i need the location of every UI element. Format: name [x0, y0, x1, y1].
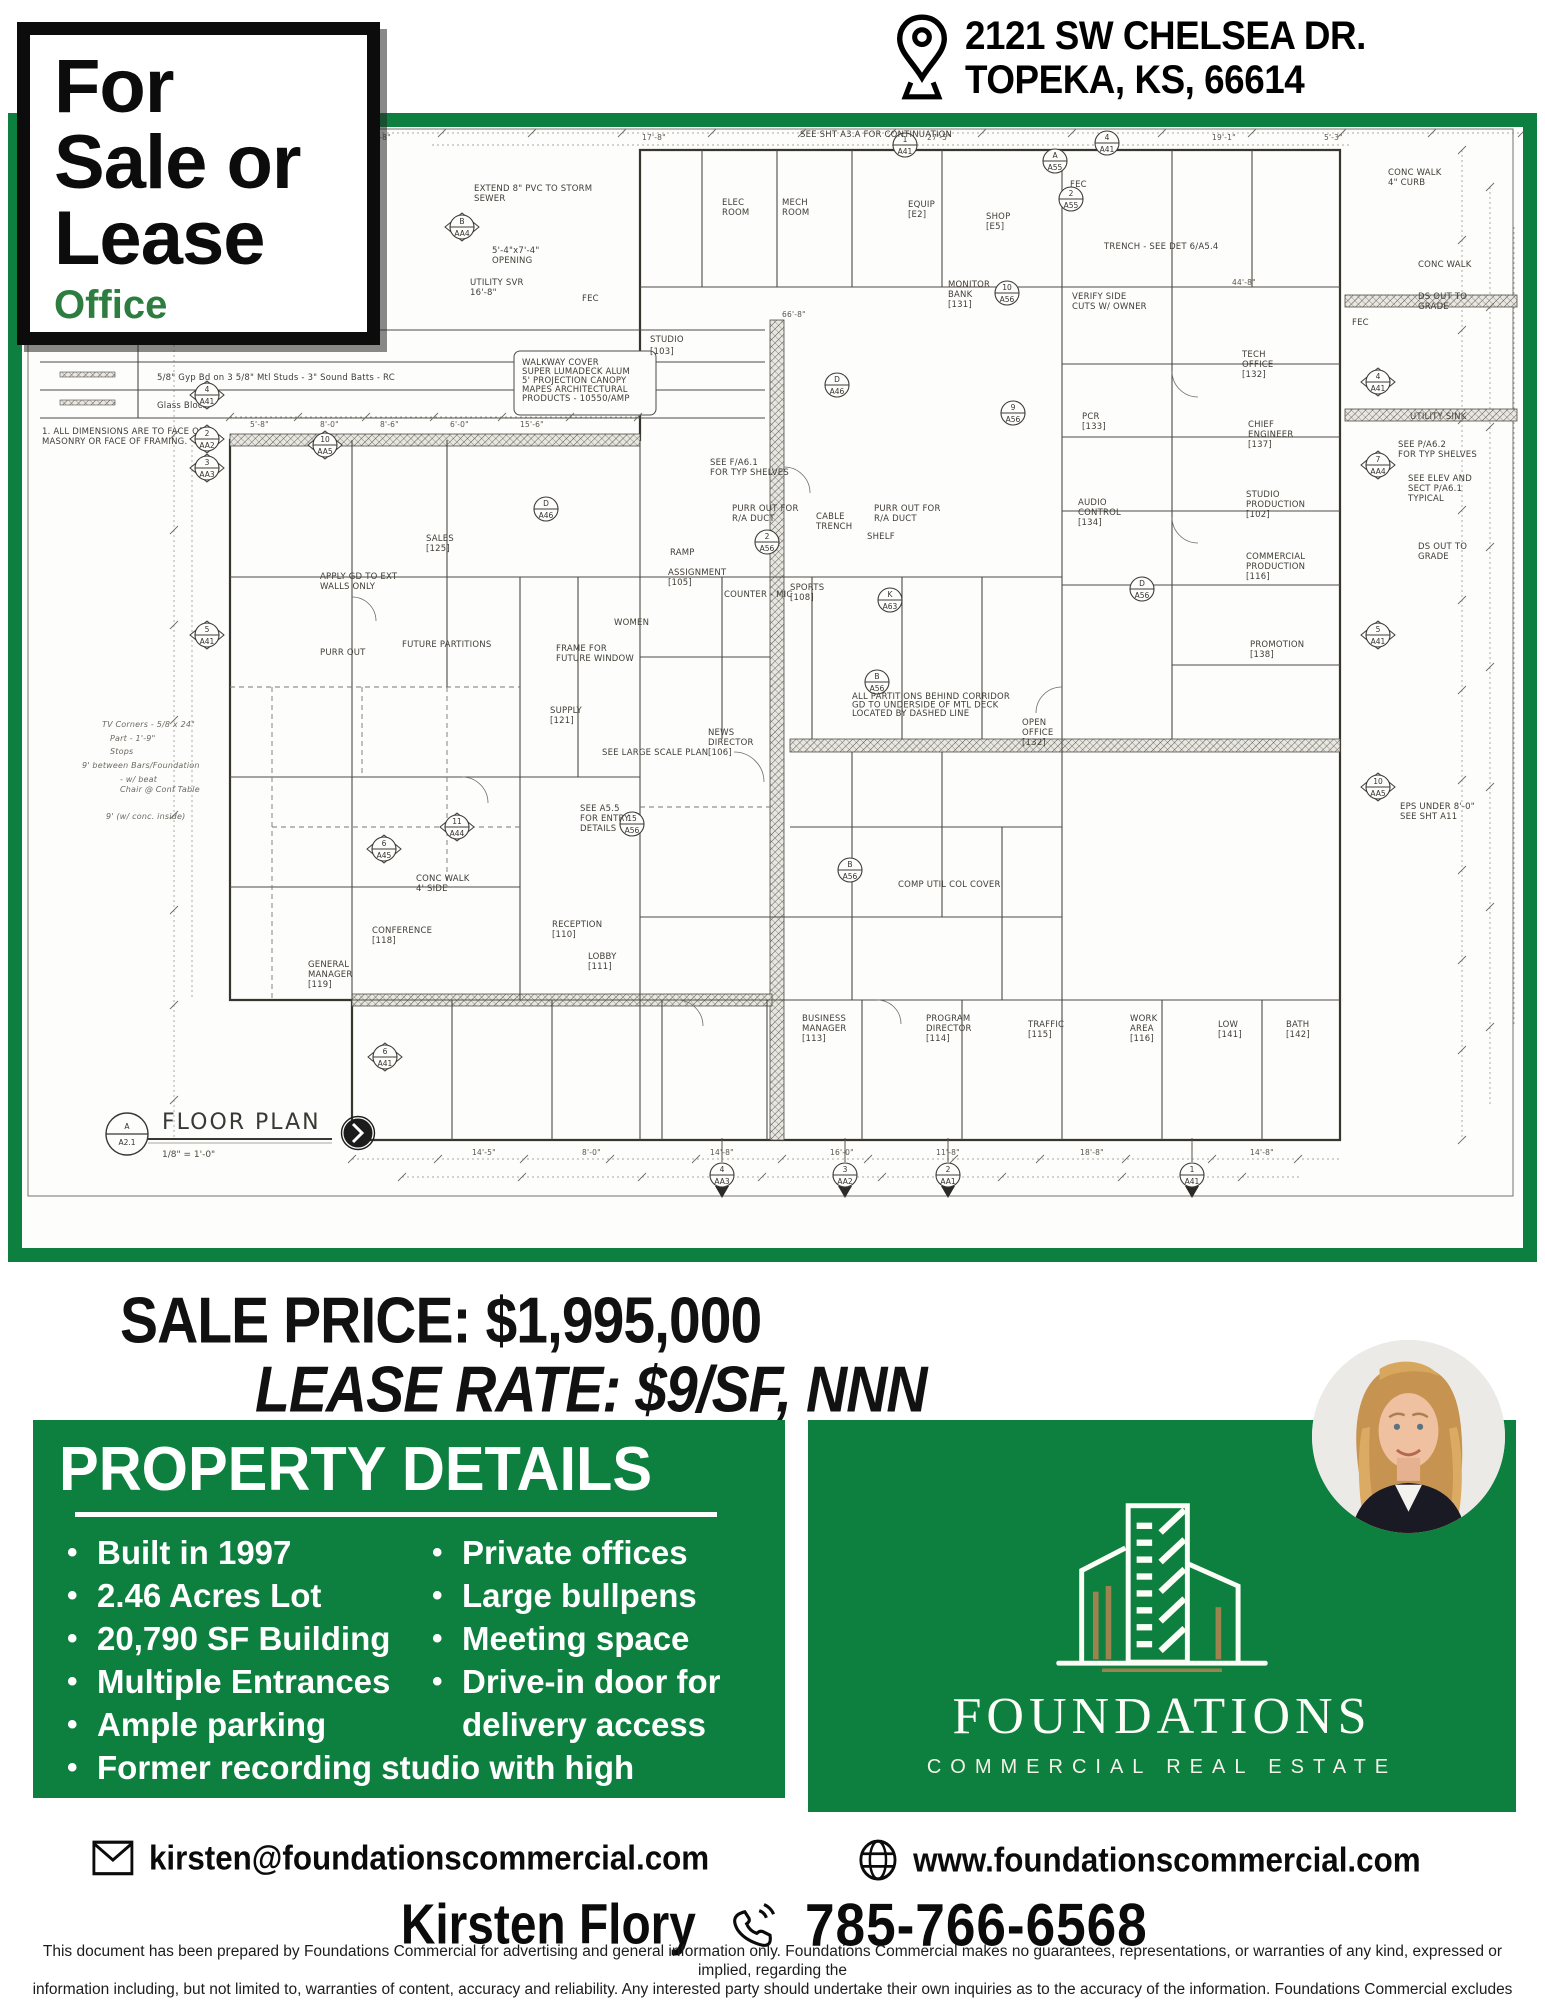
- details-column-1: Built in 19972.46 Acres Lot20,790 SF Bui…: [59, 1531, 424, 1746]
- plan-label: COUNTER - MIC: [724, 590, 793, 600]
- lease-rate: LEASE RATE: $9/SF, NNN: [255, 1352, 927, 1427]
- svg-text:A55: A55: [1048, 163, 1063, 172]
- svg-text:AA2: AA2: [199, 441, 214, 450]
- svg-text:A41: A41: [200, 397, 215, 406]
- location-pin-icon: [893, 14, 951, 100]
- plan-label: 8'-0": [582, 1148, 601, 1157]
- svg-text:10: 10: [1002, 283, 1012, 292]
- svg-text:A46: A46: [830, 387, 845, 396]
- plan-label: 14'-5": [472, 1148, 496, 1157]
- plan-reference-marker: DA46: [534, 497, 558, 521]
- svg-text:A56: A56: [843, 872, 858, 881]
- detail-item: Built in 1997: [59, 1531, 424, 1574]
- svg-text:A44: A44: [450, 829, 465, 838]
- plan-reference-marker: 2A55: [1059, 187, 1083, 211]
- plan-label: 66'-8": [782, 310, 806, 319]
- svg-text:4: 4: [720, 1165, 725, 1174]
- svg-text:A41: A41: [1185, 1177, 1200, 1186]
- svg-text:B: B: [459, 217, 464, 226]
- svg-text:A63: A63: [883, 602, 898, 611]
- plan-label: MECHROOM: [782, 198, 809, 218]
- plan-reference-marker: BA56: [838, 858, 862, 882]
- svg-text:9: 9: [1011, 403, 1016, 412]
- plan-reference-marker: 10A56: [995, 281, 1019, 305]
- svg-text:AA1: AA1: [940, 1177, 955, 1186]
- plan-label: 11'-8": [936, 1148, 960, 1157]
- svg-text:AA3: AA3: [199, 470, 214, 479]
- brand-name: FOUNDATIONS: [808, 1687, 1516, 1746]
- svg-text:AA2: AA2: [837, 1177, 852, 1186]
- email-contact[interactable]: kirsten@foundationscommercial.com: [92, 1838, 709, 1878]
- envelope-icon: [92, 1840, 134, 1876]
- plan-label: SALES[125]: [426, 534, 454, 554]
- svg-text:A41: A41: [1100, 145, 1115, 154]
- svg-text:2: 2: [765, 532, 770, 541]
- svg-text:11: 11: [452, 817, 462, 826]
- disclaimer: This document has been prepared by Found…: [18, 1942, 1527, 2000]
- banner-line-2: Sale or: [54, 125, 367, 201]
- svg-text:A56: A56: [760, 544, 775, 553]
- north-arrow-icon: [342, 1117, 375, 1150]
- plan-label: FEC: [582, 294, 599, 304]
- svg-text:4: 4: [1376, 372, 1381, 381]
- plan-label: 9' between Bars/Foundation: [82, 761, 200, 770]
- svg-text:A41: A41: [1371, 637, 1386, 646]
- svg-text:D: D: [543, 499, 549, 508]
- legend-row-1: 5/8" Gyp Bd on 3 5/8" Mtl Studs - 3" Sou…: [157, 373, 395, 383]
- brand-tagline: COMMERCIAL REAL ESTATE: [808, 1756, 1516, 1779]
- svg-text:10: 10: [320, 435, 330, 444]
- plan-reference-marker: DA46: [825, 373, 849, 397]
- disclaimer-line-2: information including, but not limited t…: [18, 1980, 1527, 2000]
- disclaimer-line-1: This document has been prepared by Found…: [18, 1942, 1527, 1980]
- plan-label: 27'-5": [927, 133, 951, 142]
- svg-text:AA5: AA5: [317, 447, 332, 456]
- svg-text:3: 3: [205, 458, 210, 467]
- svg-text:6: 6: [382, 839, 387, 848]
- svg-text:10: 10: [1373, 777, 1383, 786]
- banner-line-3: Lease: [54, 201, 367, 277]
- plan-label: TRENCH - SEE DET 6/A5.4: [1103, 242, 1218, 252]
- svg-text:A45: A45: [377, 851, 392, 860]
- property-details-panel: PROPERTY DETAILS Built in 19972.46 Acres…: [33, 1420, 785, 1798]
- svg-text:AA3: AA3: [714, 1177, 729, 1186]
- plan-label: SHELF: [867, 532, 895, 542]
- plan-label: 5'-4"x7'-4"OPENING: [492, 246, 540, 266]
- globe-icon: [858, 1838, 898, 1882]
- agent-headshot-graphic: [1312, 1340, 1505, 1533]
- details-full-width: Former recording studio with high ceilin…: [59, 1746, 759, 1832]
- agent-photo: [1312, 1340, 1505, 1533]
- plan-label: SEE LARGE SCALE PLAN: [602, 748, 708, 758]
- details-column-2: Private officesLarge bullpensMeeting spa…: [424, 1531, 744, 1746]
- svg-text:A56: A56: [625, 826, 640, 835]
- plan-label: 9' (w/ conc. inside): [106, 812, 185, 821]
- plan-label: WOMEN: [614, 618, 649, 628]
- plan-reference-marker: KA63: [878, 588, 902, 612]
- plan-label: 14'-8": [1250, 1148, 1274, 1157]
- svg-text:A41: A41: [1371, 384, 1386, 393]
- plan-label: CONC WALK: [1418, 260, 1472, 270]
- plan-reference-marker: 9A56: [1001, 401, 1025, 425]
- svg-text:AA4: AA4: [454, 229, 469, 238]
- title-underline: [75, 1512, 717, 1517]
- sale-price: SALE PRICE: $1,995,000: [120, 1283, 761, 1358]
- plan-label: PURR OUT: [320, 648, 366, 658]
- svg-text:D: D: [1139, 579, 1145, 588]
- plan-label: 8'-0": [320, 420, 339, 429]
- svg-text:A56: A56: [1000, 295, 1015, 304]
- plan-reference-marker: DA56: [1130, 577, 1154, 601]
- detail-item: Ample parking: [59, 1703, 424, 1746]
- plan-label: Stops: [110, 747, 133, 756]
- svg-text:2: 2: [205, 429, 210, 438]
- svg-text:A55: A55: [1064, 201, 1079, 210]
- detail-item: 2.46 Acres Lot: [59, 1574, 424, 1617]
- website-text: www.foundationscommercial.com: [913, 1840, 1421, 1880]
- plan-reference-marker: AA55: [1043, 149, 1067, 173]
- plan-label: 8'-6": [380, 420, 399, 429]
- plan-label: UTILITY SINK: [1410, 412, 1467, 422]
- property-address: 2121 SW CHELSEA DR. TOPEKA, KS, 66614: [893, 14, 1401, 102]
- detail-item: Multiple Entrances: [59, 1660, 424, 1703]
- plan-label: 15'-6": [520, 420, 544, 429]
- foundations-building-logo: [1049, 1486, 1275, 1672]
- plan-title: FLOOR PLAN: [162, 1110, 321, 1135]
- plan-label: 14'-8": [710, 1148, 734, 1157]
- svg-text:6: 6: [383, 1047, 388, 1056]
- plan-ref-bottom: A2.1: [118, 1138, 135, 1147]
- plan-label: Part - 1'-9": [110, 734, 155, 743]
- plan-label: 16'-0": [830, 1148, 854, 1157]
- plan-label: 18'-8": [1080, 1148, 1104, 1157]
- svg-text:B: B: [847, 860, 852, 869]
- svg-text:A41: A41: [378, 1059, 393, 1068]
- svg-text:4: 4: [1105, 133, 1110, 142]
- plan-ref-top: A: [124, 1122, 130, 1131]
- plan-reference-marker: BA56: [865, 670, 889, 694]
- svg-text:D: D: [834, 375, 840, 384]
- svg-text:1: 1: [1190, 1165, 1195, 1174]
- banner-subtitle: Office: [54, 283, 367, 328]
- plan-label: BATH[142]: [1286, 1020, 1310, 1040]
- website-contact[interactable]: www.foundationscommercial.com: [858, 1838, 1421, 1882]
- svg-text:A41: A41: [200, 637, 215, 646]
- plan-label: FUTURE PARTITIONS: [402, 640, 491, 650]
- svg-text:B: B: [874, 672, 879, 681]
- plan-scale: 1/8" = 1'-0": [162, 1150, 215, 1160]
- detail-item: 20,790 SF Building: [59, 1617, 424, 1660]
- detail-item: Former recording studio with high ceilin…: [59, 1746, 759, 1832]
- svg-text:A56: A56: [1006, 415, 1021, 424]
- plan-reference-marker: 2A56: [755, 530, 779, 554]
- sale-banner: For Sale or Lease Office: [17, 22, 380, 345]
- plan-label: 19'-1": [1212, 133, 1236, 142]
- svg-text:AA4: AA4: [1370, 467, 1385, 476]
- plan-label: FEC: [1070, 180, 1087, 190]
- plan-label: 44'-8": [1232, 278, 1256, 287]
- svg-text:2: 2: [946, 1165, 951, 1174]
- plan-label: TV Corners - 5/8 x 24": [102, 720, 195, 729]
- flyer-page: 2121 SW CHELSEA DR. TOPEKA, KS, 66614: [0, 0, 1545, 2000]
- address-line-1: 2121 SW CHELSEA DR.: [965, 14, 1366, 58]
- plan-label: FEC: [1352, 318, 1369, 328]
- plan-label: WORKAREA[116]: [1130, 1014, 1158, 1044]
- svg-text:A41: A41: [898, 147, 913, 156]
- detail-item: Private offices: [424, 1531, 744, 1574]
- contact-row: kirsten@foundationscommercial.com www.fo…: [0, 1838, 1545, 1894]
- plan-note-1: 1. ALL DIMENSIONS ARE TO FACE OF: [42, 427, 204, 437]
- svg-text:5: 5: [205, 625, 210, 634]
- plan-label: RAMP: [670, 548, 695, 558]
- address-line-2: TOPEKA, KS, 66614: [965, 58, 1366, 102]
- detail-item: Meeting space: [424, 1617, 744, 1660]
- plan-label: 5'-3": [1324, 133, 1343, 142]
- svg-text:AA5: AA5: [1370, 789, 1385, 798]
- plan-note-2: MASONRY OR FACE OF FRAMING.: [42, 437, 187, 447]
- svg-text:3: 3: [843, 1165, 848, 1174]
- plan-label: COMP UTIL COL COVER: [898, 880, 1001, 890]
- svg-text:5: 5: [1376, 625, 1381, 634]
- plan-label: 5'-8": [250, 420, 269, 429]
- banner-line-1: For: [54, 49, 367, 125]
- plan-label: 6'-0": [450, 420, 469, 429]
- email-text: kirsten@foundationscommercial.com: [149, 1838, 709, 1878]
- plan-label: 17'-8": [642, 133, 666, 142]
- property-details-title: PROPERTY DETAILS: [59, 1438, 731, 1502]
- svg-text:7: 7: [1376, 455, 1381, 464]
- detail-item: Large bullpens: [424, 1574, 744, 1617]
- svg-text:A: A: [1052, 151, 1058, 160]
- svg-text:2: 2: [1069, 189, 1074, 198]
- svg-text:A46: A46: [539, 511, 554, 520]
- svg-text:4: 4: [205, 385, 210, 394]
- plan-reference-marker: 4A41: [1095, 131, 1119, 155]
- detail-item: Drive-in door for delivery access: [424, 1660, 744, 1746]
- svg-text:A56: A56: [1135, 591, 1150, 600]
